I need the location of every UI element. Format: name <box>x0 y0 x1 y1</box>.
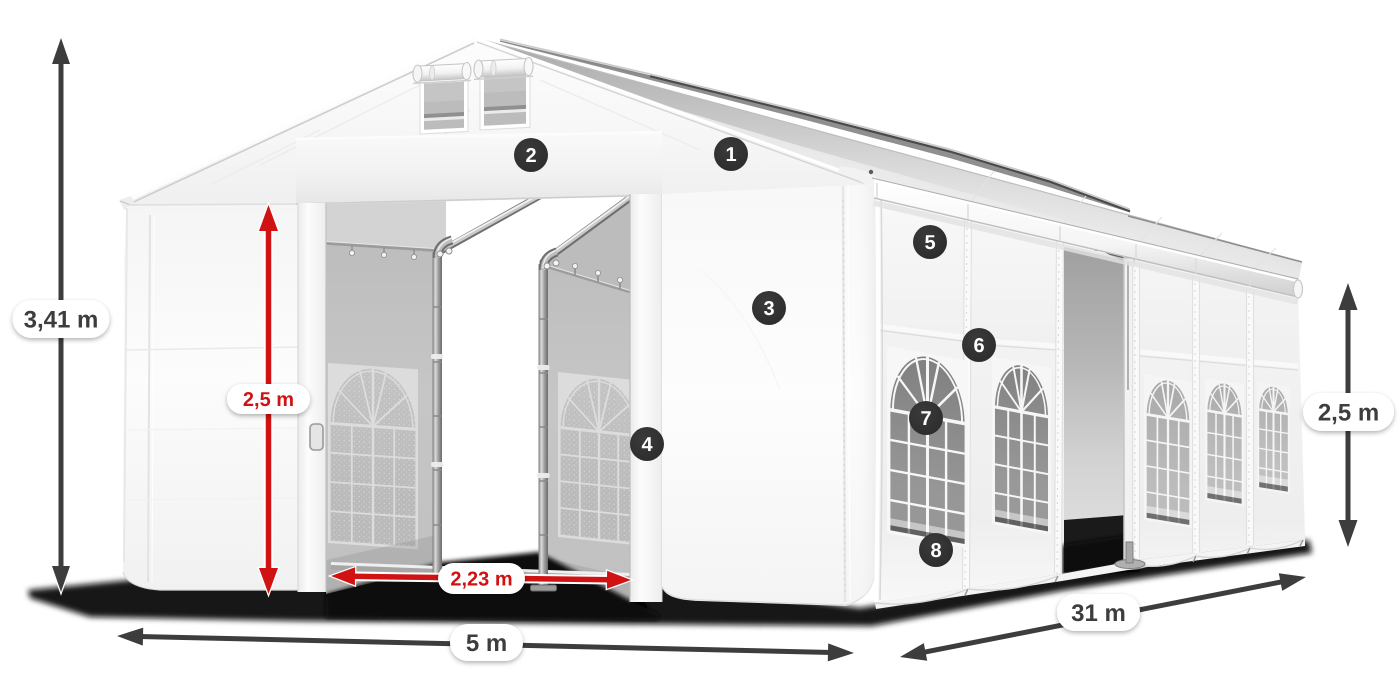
svg-text:1: 1 <box>725 144 736 166</box>
svg-text:3,41 m: 3,41 m <box>24 306 99 333</box>
svg-text:31 m: 31 m <box>1071 600 1126 627</box>
svg-text:8: 8 <box>930 540 941 562</box>
svg-text:2,23 m: 2,23 m <box>450 569 512 591</box>
svg-text:7: 7 <box>920 408 931 430</box>
svg-text:2,5 m: 2,5 m <box>243 389 294 411</box>
svg-text:5: 5 <box>924 232 935 254</box>
svg-text:4: 4 <box>641 434 653 456</box>
svg-text:2,5 m: 2,5 m <box>1318 399 1379 426</box>
svg-text:6: 6 <box>973 335 984 357</box>
svg-text:2: 2 <box>525 145 536 167</box>
svg-text:3: 3 <box>763 298 774 320</box>
svg-text:5 m: 5 m <box>466 630 507 657</box>
